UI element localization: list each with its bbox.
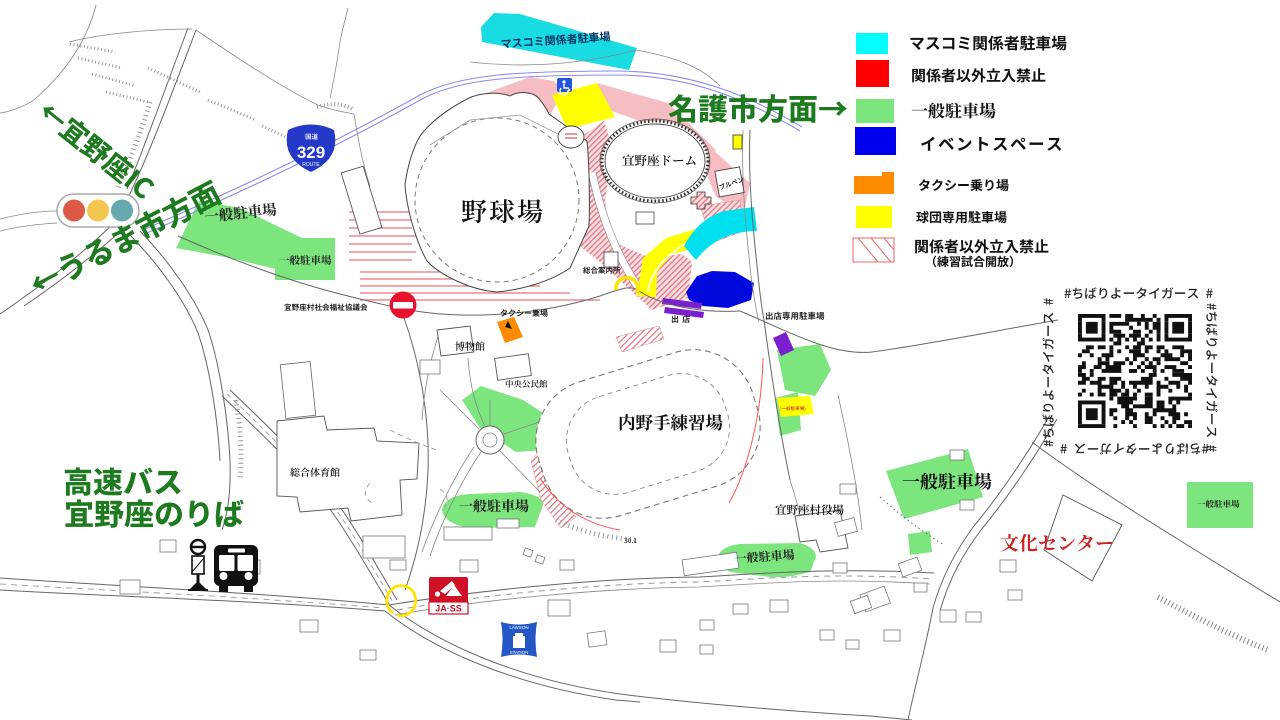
svg-text:JA·SS: JA·SS [435,604,462,614]
svg-text:LAWSON: LAWSON [509,625,528,630]
svg-text:329: 329 [297,143,325,162]
svg-text:STATION: STATION [510,650,529,655]
svg-text:ROUTE: ROUTE [302,162,320,168]
